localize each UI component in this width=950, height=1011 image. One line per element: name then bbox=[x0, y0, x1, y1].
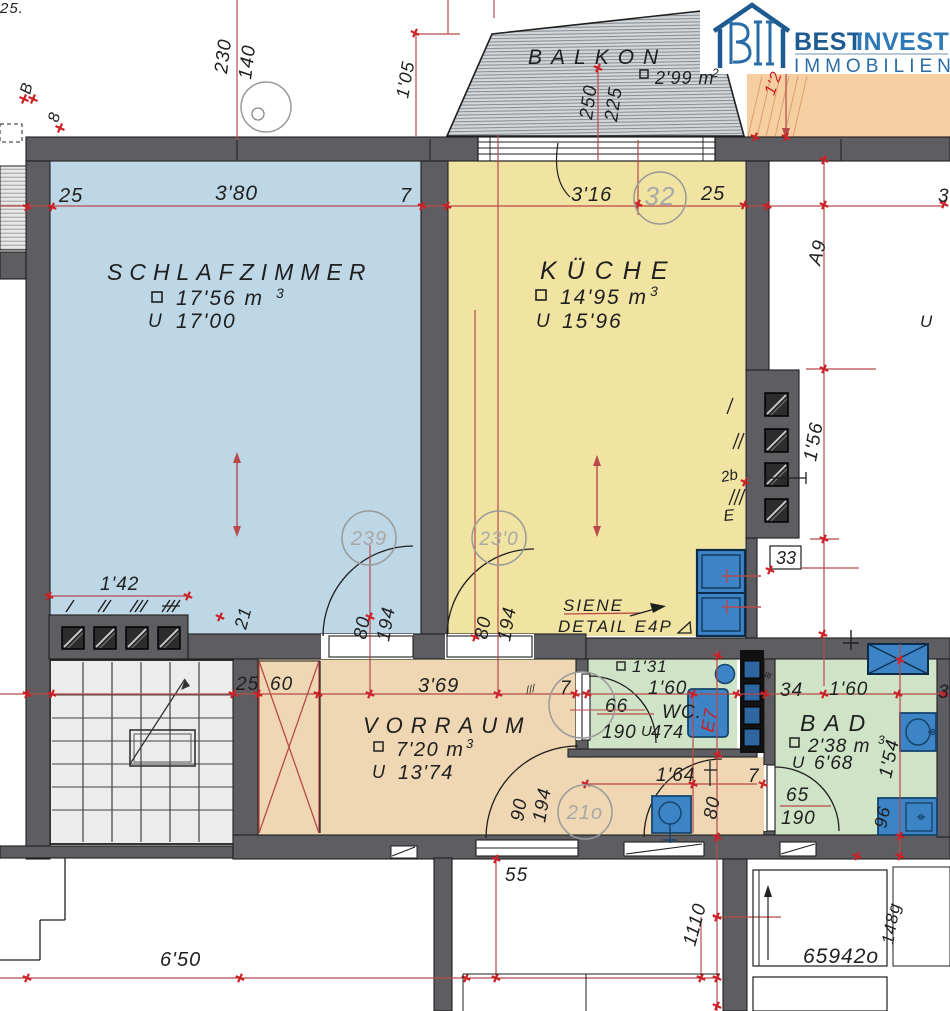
svg-text:230: 230 bbox=[211, 38, 236, 76]
svg-text:2b: 2b bbox=[719, 466, 739, 486]
svg-text:3: 3 bbox=[650, 283, 658, 299]
svg-text:3: 3 bbox=[938, 682, 949, 703]
svg-text:13'74: 13'74 bbox=[398, 762, 454, 784]
svg-text:1'60: 1'60 bbox=[829, 679, 868, 700]
svg-text:1'60: 1'60 bbox=[648, 678, 687, 699]
svg-text:190: 190 bbox=[781, 808, 816, 829]
svg-text:65942o: 65942o bbox=[803, 945, 879, 968]
svg-text:14'95 m: 14'95 m bbox=[560, 286, 648, 309]
svg-text:3'16: 3'16 bbox=[571, 184, 612, 206]
svg-text:140: 140 bbox=[235, 44, 260, 81]
svg-text:21o: 21o bbox=[566, 802, 603, 824]
svg-text:1'64: 1'64 bbox=[656, 765, 695, 786]
svg-text:34: 34 bbox=[780, 680, 803, 701]
svg-text:3: 3 bbox=[276, 285, 284, 301]
svg-text:6'68: 6'68 bbox=[814, 753, 853, 774]
svg-text:U: U bbox=[372, 762, 386, 782]
svg-text:15'96: 15'96 bbox=[562, 310, 623, 333]
svg-text:33: 33 bbox=[776, 548, 796, 568]
svg-text:BALKON: BALKON bbox=[528, 46, 667, 69]
svg-text:U: U bbox=[920, 312, 933, 331]
svg-text:474: 474 bbox=[651, 722, 684, 742]
svg-text:7: 7 bbox=[400, 185, 412, 207]
svg-text:U: U bbox=[536, 311, 550, 332]
svg-text:SIENE: SIENE bbox=[563, 596, 624, 615]
svg-text:3'80: 3'80 bbox=[215, 182, 258, 205]
svg-text:3'69: 3'69 bbox=[418, 675, 459, 697]
svg-text:239: 239 bbox=[350, 528, 387, 550]
svg-text:KÜCHE: KÜCHE bbox=[540, 257, 678, 285]
svg-text:17'56 m: 17'56 m bbox=[176, 287, 264, 310]
svg-text:23'0: 23'0 bbox=[478, 529, 518, 550]
svg-text:7: 7 bbox=[748, 766, 760, 787]
svg-text:25: 25 bbox=[700, 183, 725, 205]
svg-text:17'00: 17'00 bbox=[176, 310, 237, 333]
svg-text:2'99 m: 2'99 m bbox=[654, 68, 714, 88]
svg-text:IMMOBILIEN: IMMOBILIEN bbox=[794, 56, 950, 77]
svg-text:1'31: 1'31 bbox=[632, 657, 668, 676]
svg-text:2: 2 bbox=[711, 66, 719, 80]
svg-text:25: 25 bbox=[235, 674, 259, 695]
svg-text:SCHLAFZIMMER: SCHLAFZIMMER bbox=[107, 259, 372, 285]
svg-text:65: 65 bbox=[786, 785, 809, 806]
svg-text:80: 80 bbox=[350, 614, 375, 640]
svg-text:60: 60 bbox=[270, 674, 293, 695]
svg-text:1'42: 1'42 bbox=[100, 574, 139, 595]
svg-text:WC.: WC. bbox=[662, 702, 702, 723]
svg-text:E: E bbox=[723, 507, 735, 525]
svg-text:3: 3 bbox=[938, 186, 949, 207]
svg-text:90: 90 bbox=[507, 796, 532, 822]
svg-text:U: U bbox=[792, 753, 805, 772]
svg-text:E7: E7 bbox=[697, 707, 721, 734]
svg-text:VORRAUM: VORRAUM bbox=[363, 713, 531, 738]
svg-text:66: 66 bbox=[605, 696, 628, 717]
svg-text:3: 3 bbox=[466, 736, 474, 751]
svg-text:80: 80 bbox=[700, 794, 725, 820]
svg-text:7'20 m: 7'20 m bbox=[396, 739, 464, 761]
svg-text:25: 25 bbox=[58, 185, 83, 207]
svg-text:80: 80 bbox=[471, 614, 496, 640]
svg-text:25.: 25. bbox=[0, 0, 24, 17]
svg-text:7: 7 bbox=[560, 678, 572, 699]
svg-text:BEST: BEST bbox=[794, 28, 863, 56]
svg-text:DETAIL E4P: DETAIL E4P bbox=[558, 617, 673, 636]
svg-text:190: 190 bbox=[602, 722, 637, 743]
svg-text:U: U bbox=[148, 311, 162, 332]
svg-text:INVEST: INVEST bbox=[856, 28, 949, 56]
svg-text:6'50: 6'50 bbox=[160, 949, 201, 971]
svg-text:32: 32 bbox=[645, 181, 676, 211]
svg-text:BAD: BAD bbox=[800, 710, 874, 736]
svg-text:55: 55 bbox=[505, 865, 528, 886]
